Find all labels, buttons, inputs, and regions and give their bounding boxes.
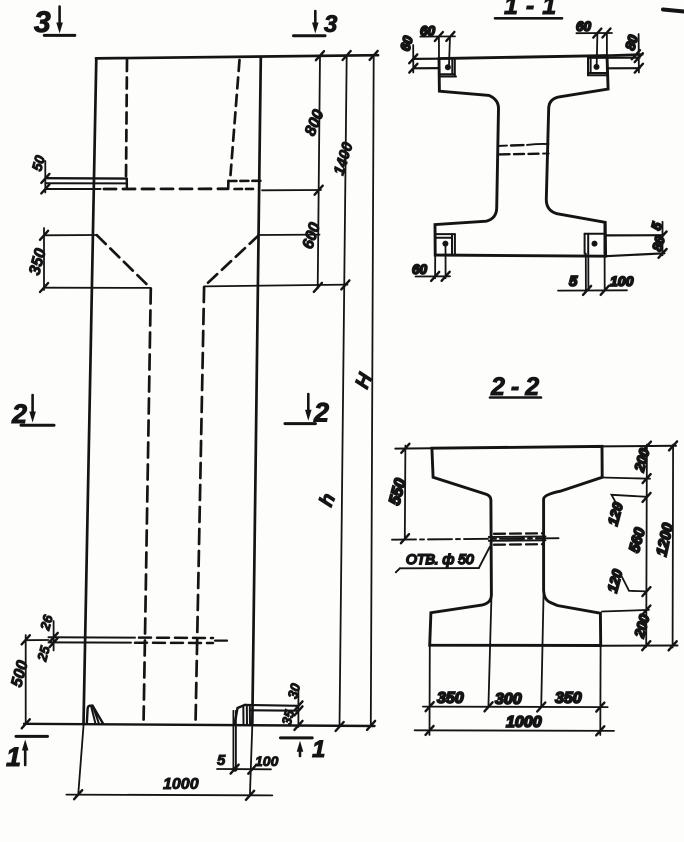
svg-text:1000: 1000 (163, 776, 199, 793)
svg-text:120: 120 (604, 500, 626, 527)
svg-text:550: 550 (386, 477, 409, 507)
svg-text:560: 560 (626, 525, 649, 554)
svg-text:120: 120 (604, 567, 626, 594)
svg-text:100: 100 (610, 273, 634, 289)
svg-text:h: h (315, 490, 340, 510)
svg-text:1: 1 (6, 742, 21, 772)
svg-text:ОТВ. ф 50: ОТВ. ф 50 (406, 551, 474, 567)
svg-text:60: 60 (576, 19, 592, 34)
svg-text:5: 5 (569, 273, 578, 290)
svg-text:H: H (351, 370, 377, 392)
svg-text:350: 350 (437, 690, 464, 707)
svg-text:60: 60 (412, 262, 428, 277)
svg-text:5: 5 (217, 752, 226, 769)
svg-text:500: 500 (8, 659, 31, 689)
svg-text:350: 350 (26, 247, 49, 277)
svg-text:1: 1 (312, 736, 325, 763)
svg-text:350: 350 (555, 690, 582, 707)
svg-text:100: 100 (255, 753, 279, 769)
svg-text:3: 3 (324, 11, 338, 38)
svg-text:800: 800 (302, 107, 328, 138)
svg-text:300: 300 (495, 691, 522, 708)
svg-text:200: 200 (631, 446, 653, 474)
svg-text:30: 30 (285, 681, 304, 700)
svg-text:600: 600 (300, 220, 324, 251)
svg-text:1400: 1400 (331, 140, 357, 178)
svg-text:1000: 1000 (506, 714, 542, 731)
svg-text:60: 60 (420, 24, 436, 39)
svg-text:200: 200 (631, 612, 653, 640)
